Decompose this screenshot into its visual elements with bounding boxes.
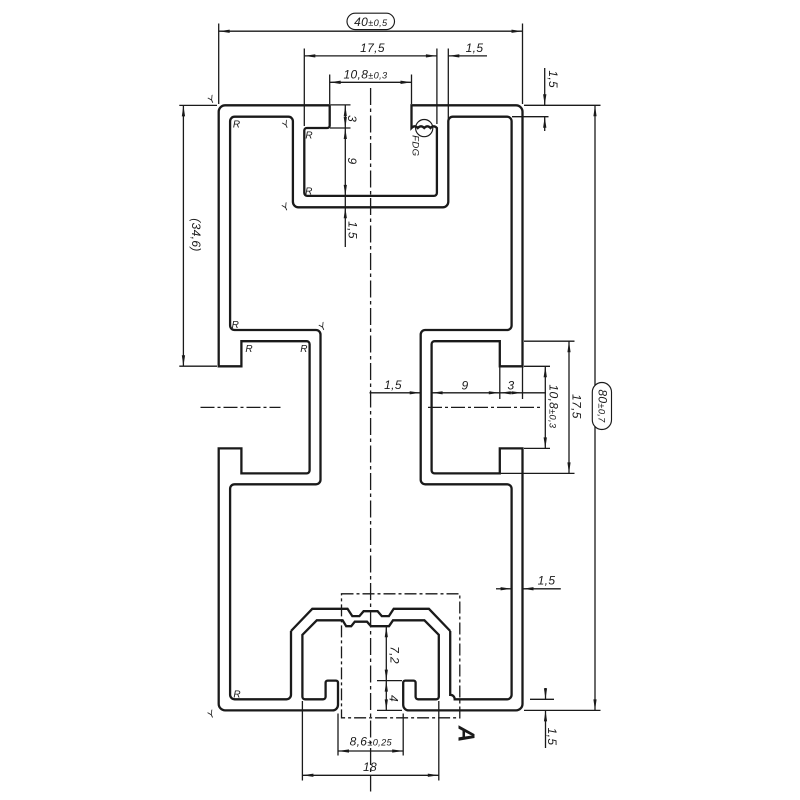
svg-text:1,5: 1,5 xyxy=(345,221,359,239)
svg-text:1,5: 1,5 xyxy=(466,41,484,55)
svg-text:R: R xyxy=(305,186,312,197)
svg-text:9: 9 xyxy=(461,379,468,393)
svg-text:Y: Y xyxy=(280,118,293,132)
svg-text:1,5: 1,5 xyxy=(538,573,556,587)
svg-text:R: R xyxy=(245,344,252,355)
svg-text:R: R xyxy=(232,320,239,331)
svg-text:17,5: 17,5 xyxy=(570,394,584,419)
svg-text:Y: Y xyxy=(206,708,219,722)
svg-text:1,5: 1,5 xyxy=(545,728,559,746)
svg-text:10,8±0,3: 10,8±0,3 xyxy=(344,68,389,82)
svg-text:A: A xyxy=(454,725,480,743)
svg-text:17,5: 17,5 xyxy=(360,41,385,55)
svg-text:80±0,7: 80±0,7 xyxy=(595,389,609,423)
svg-text:R: R xyxy=(233,119,240,130)
svg-text:9: 9 xyxy=(345,157,359,164)
svg-text:7,2: 7,2 xyxy=(387,646,401,664)
svg-text:R: R xyxy=(233,690,240,701)
svg-text:Y: Y xyxy=(280,201,293,215)
svg-text:18: 18 xyxy=(363,760,377,774)
svg-text:R: R xyxy=(305,131,312,142)
svg-text:3: 3 xyxy=(345,115,359,122)
svg-text:(34,6): (34,6) xyxy=(189,218,203,251)
svg-text:10,8±0,3: 10,8±0,3 xyxy=(547,384,561,429)
svg-text:40±0,5: 40±0,5 xyxy=(354,15,388,29)
svg-text:R: R xyxy=(300,344,307,355)
svg-text:1,5: 1,5 xyxy=(546,70,560,88)
svg-text:3: 3 xyxy=(507,379,514,393)
svg-text:4: 4 xyxy=(386,695,400,702)
svg-text:1,5: 1,5 xyxy=(384,378,402,392)
svg-text:8,6±0,25: 8,6±0,25 xyxy=(350,735,393,749)
svg-text:FDG: FDG xyxy=(410,135,421,156)
